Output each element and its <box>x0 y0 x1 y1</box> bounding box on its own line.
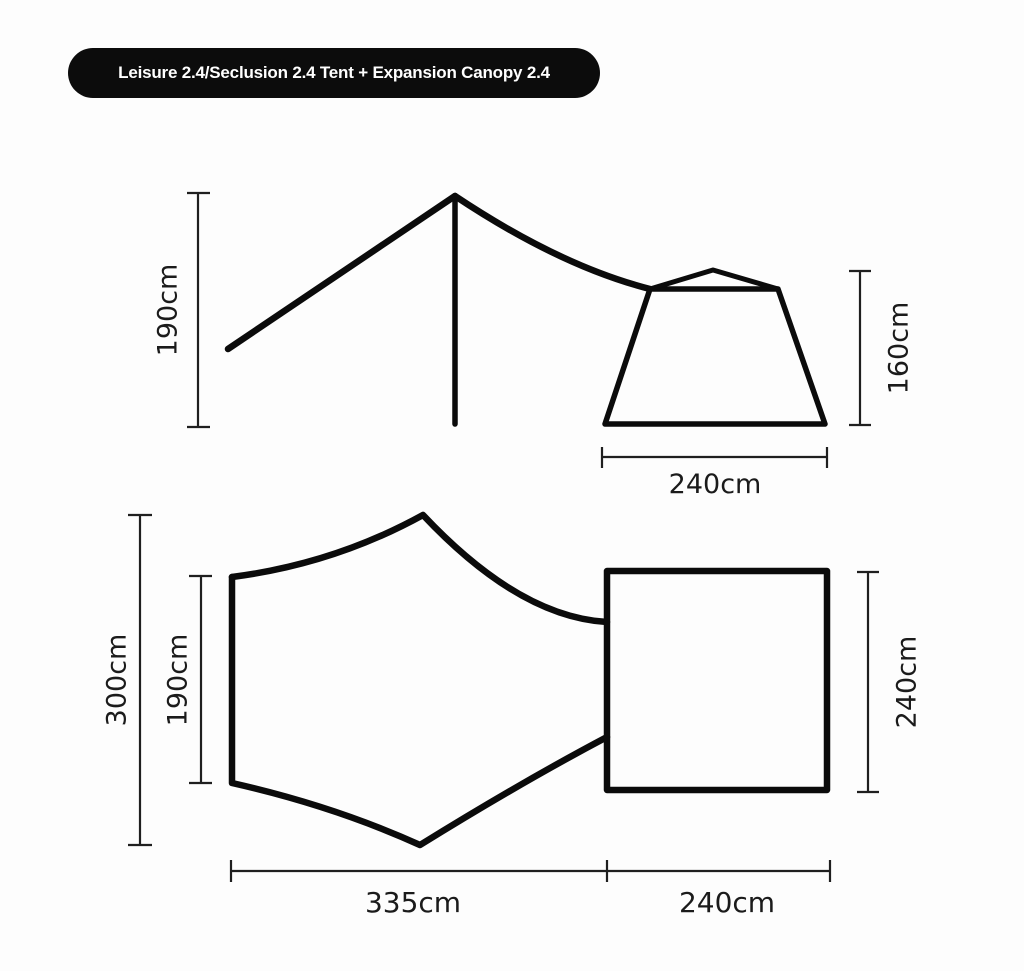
top-dim-tent-depth-line <box>857 572 879 792</box>
top-view-diagram: 300cm 190cm 240cm 335cm 240cm <box>101 515 922 919</box>
tent-side-body <box>605 289 825 424</box>
side-dim-tent-height-line <box>849 271 871 425</box>
top-dim-canopy-panel-depth-label: 190cm <box>162 634 193 727</box>
diagram-canvas: Leisure 2.4/Seclusion 2.4 Tent + Expansi… <box>0 0 1024 971</box>
top-dim-tent-depth-label: 240cm <box>891 636 922 729</box>
top-dim-canopy-full-depth: 300cm <box>101 515 152 845</box>
canopy-footprint-left-bottom-edge <box>232 577 607 845</box>
tent-side-roof-peak <box>650 270 778 289</box>
canopy-footprint-top-edge <box>232 515 607 622</box>
top-dim-canopy-width-label: 335cm <box>365 886 461 919</box>
side-view-diagram: 190cm 160cm 240cm <box>152 193 914 500</box>
canopy-right-edge <box>455 196 650 289</box>
side-dim-tent-height-label: 160cm <box>883 302 914 395</box>
tent-dimension-diagram: 190cm 160cm 240cm <box>0 0 1024 971</box>
top-dim-tent-width-label: 240cm <box>679 886 775 919</box>
tent-footprint-square <box>607 571 827 790</box>
side-dim-canopy-height-label: 190cm <box>152 264 183 357</box>
side-dim-tent-width: 240cm <box>602 447 827 500</box>
top-dim-canopy-panel-depth: 190cm <box>162 576 212 783</box>
side-dim-tent-width-line <box>602 447 827 468</box>
top-dim-bottom-widths: 335cm 240cm <box>231 860 830 919</box>
side-dim-tent-width-label: 240cm <box>669 469 762 500</box>
side-dim-canopy-height: 190cm <box>152 193 210 427</box>
side-dim-canopy-height-line <box>187 193 210 427</box>
canopy-left-edge <box>228 196 455 349</box>
top-dim-bottom-widths-line <box>231 860 830 882</box>
top-dim-tent-depth: 240cm <box>857 572 922 792</box>
side-dim-tent-height: 160cm <box>849 271 914 425</box>
top-dim-canopy-full-depth-label: 300cm <box>101 634 132 727</box>
